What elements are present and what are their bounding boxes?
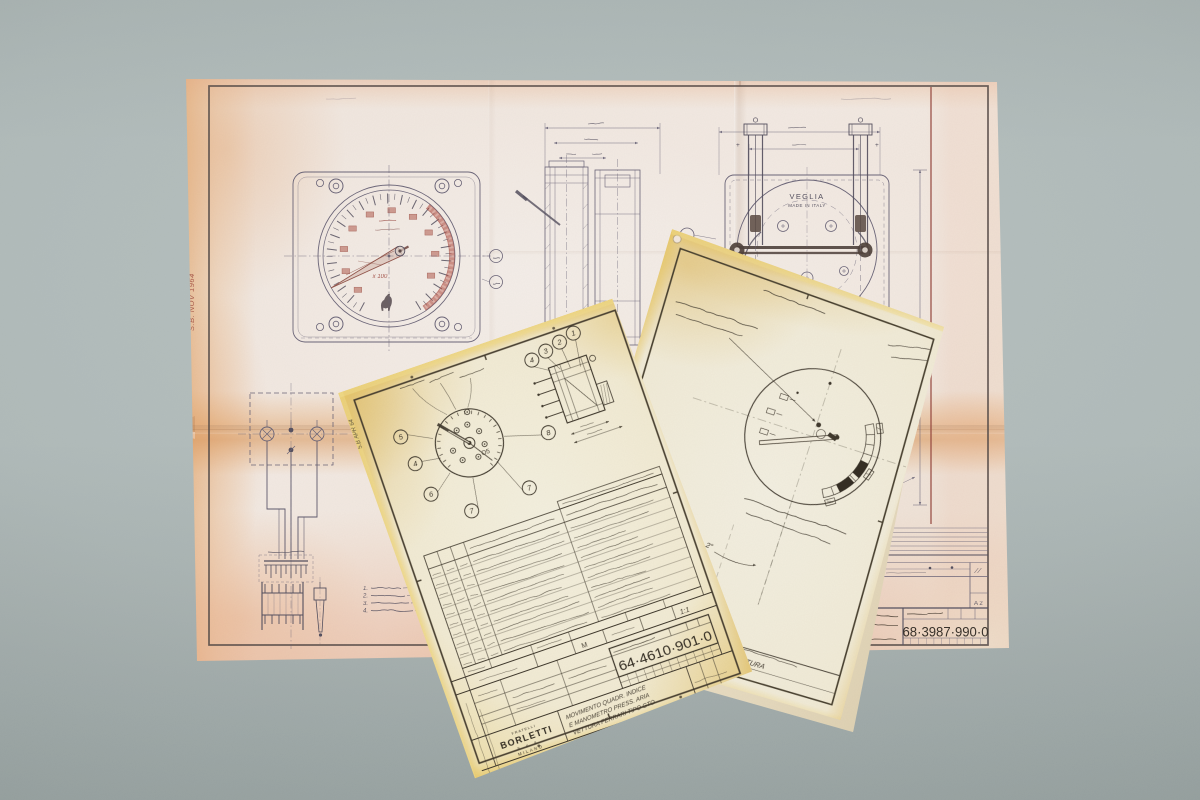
svg-text:2.: 2. xyxy=(362,594,368,600)
svg-text:A 2: A 2 xyxy=(974,601,983,607)
svg-text:1.: 1. xyxy=(363,586,368,592)
svg-text:+: + xyxy=(736,142,740,149)
svg-text:+: + xyxy=(875,142,879,149)
svg-text:S.B. NOV 1964: S.B. NOV 1964 xyxy=(187,273,196,331)
svg-text:3.: 3. xyxy=(363,601,368,607)
svg-text:x 100: x 100 xyxy=(372,274,388,280)
svg-text:4.: 4. xyxy=(363,609,368,615)
